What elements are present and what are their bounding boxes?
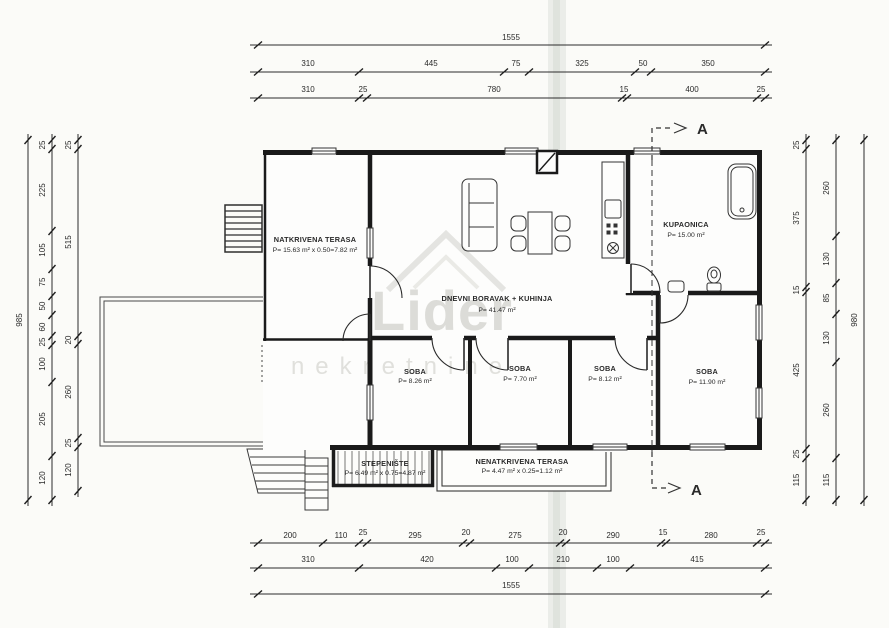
dim-value: 100: [606, 555, 620, 564]
dim-value: 400: [685, 85, 699, 94]
dim-value: 205: [38, 412, 47, 426]
dim-value: 225: [38, 183, 47, 197]
room-area: P= 15.00 m²: [667, 232, 705, 239]
dim-value: 415: [690, 555, 704, 564]
dim-value: 25: [38, 140, 47, 149]
dim-value: 15: [620, 85, 629, 94]
dim-value: 985: [15, 313, 24, 327]
dim-value: 85: [822, 293, 831, 302]
dim-value: 375: [792, 211, 801, 225]
dim-value: 15: [659, 528, 668, 537]
dim-value: 100: [38, 357, 47, 371]
room-label: SOBA: [594, 364, 616, 373]
dim-value: 980: [850, 313, 859, 327]
dim-value: 105: [38, 243, 47, 257]
dim-value: 110: [335, 531, 348, 540]
section-arrow-top: [674, 123, 686, 133]
floor-plan-sheet: Lider nekretnine: [0, 0, 889, 628]
room-label: NATKRIVENA TERASA: [274, 235, 357, 244]
dim-value: 20: [462, 528, 471, 537]
dim-value: 25: [359, 528, 368, 537]
room-area: P= 4.47 m² x 0.25=1.12 m²: [482, 468, 564, 475]
dim-value: 445: [424, 59, 438, 68]
dim-value: 15: [792, 285, 801, 294]
dim-value: 25: [64, 438, 73, 447]
dim-value: 25: [757, 528, 766, 537]
dim-value: 260: [64, 385, 73, 399]
dim-value: 260: [822, 181, 831, 195]
dim-value: 100: [505, 555, 519, 564]
dim-value: 275: [508, 531, 522, 540]
dim-value: 515: [64, 235, 73, 249]
room-label: SOBA: [696, 367, 718, 376]
dim-value: 20: [559, 528, 568, 537]
room-area: P= 11.90 m²: [689, 379, 726, 386]
room-label: STEPENIŠTE: [361, 459, 408, 468]
floor-plan-drawing: Lider nekretnine: [0, 0, 889, 628]
section-label-bottom: A: [691, 482, 702, 499]
dim-value: 310: [301, 555, 315, 564]
section-label-top: A: [697, 121, 708, 138]
dim-value: 130: [822, 252, 831, 266]
dim-value: 75: [512, 59, 521, 68]
dim-value: 115: [822, 473, 831, 486]
dim-value: 425: [792, 363, 801, 377]
dim-value: 60: [38, 322, 47, 331]
stair-flight-winder: [247, 449, 305, 493]
watermark-text-2: nekretnine: [291, 353, 513, 380]
chimney-icon: [537, 151, 557, 173]
room-label: SOBA: [509, 364, 531, 373]
room-label: KUPAONICA: [663, 220, 709, 229]
terrace-entry-steps: [225, 205, 262, 252]
dim-value: 25: [792, 449, 801, 458]
dim-value: 120: [38, 471, 47, 485]
dim-value: 50: [38, 301, 47, 310]
dim-value: 210: [556, 555, 570, 564]
room-label: SOBA: [404, 367, 426, 376]
dim-value: 1555: [502, 33, 520, 42]
dim-value: 25: [359, 85, 368, 94]
dimension-labels-left: 985 25 225 105 75 50 60 25 100 205 120 2…: [15, 140, 73, 485]
room-area: P= 8.12 m²: [588, 376, 622, 383]
dim-value: 200: [283, 531, 297, 540]
dimension-labels-bottom: 200 110 25 295 20 275 20 290 15 280 25 3…: [283, 528, 766, 590]
dim-value: 295: [408, 531, 422, 540]
exterior-stairs: [247, 449, 328, 510]
room-label: DNEVNI BORAVAK + KUHINJA: [442, 294, 553, 303]
dim-value: 290: [606, 531, 620, 540]
dim-value: 1555: [502, 581, 520, 590]
dim-value: 25: [757, 85, 766, 94]
interior-staircase: [332, 450, 434, 487]
dim-value: 25: [64, 140, 73, 149]
dim-value: 310: [301, 85, 315, 94]
room-area: P= 15.63 m² x 0.50=7.82 m²: [273, 247, 358, 254]
room-area: P= 7.70 m²: [503, 376, 537, 383]
dim-value: 310: [301, 59, 315, 68]
dim-value: 25: [792, 140, 801, 149]
dim-value: 50: [639, 59, 648, 68]
dim-value: 20: [64, 335, 73, 344]
dim-value: 325: [575, 59, 589, 68]
dim-value: 120: [64, 463, 73, 477]
dim-value: 420: [420, 555, 434, 564]
room-label: NENATKRIVENA TERASA: [476, 457, 570, 466]
dim-value: 260: [822, 403, 831, 417]
dim-value: 350: [701, 59, 715, 68]
dim-value: 280: [704, 531, 718, 540]
dim-value: 75: [38, 277, 47, 286]
dimension-labels-top: 1555 310 445 75 325 50 350 310 25 780 15…: [301, 33, 766, 94]
dim-value: 115: [792, 473, 801, 486]
room-area: P= 41.47 m²: [478, 307, 516, 314]
dimension-labels-right: 25 375 15 425 25 115 260 130 85 130 260 …: [792, 140, 859, 486]
room-area: P= 8.26 m²: [398, 378, 432, 385]
room-area: P= 6.49 m² x 0.75=4.87 m²: [345, 470, 427, 477]
section-arrow-bottom: [668, 483, 680, 493]
dim-value: 780: [487, 85, 501, 94]
dim-value: 130: [822, 331, 831, 345]
dim-value: 25: [38, 337, 47, 346]
